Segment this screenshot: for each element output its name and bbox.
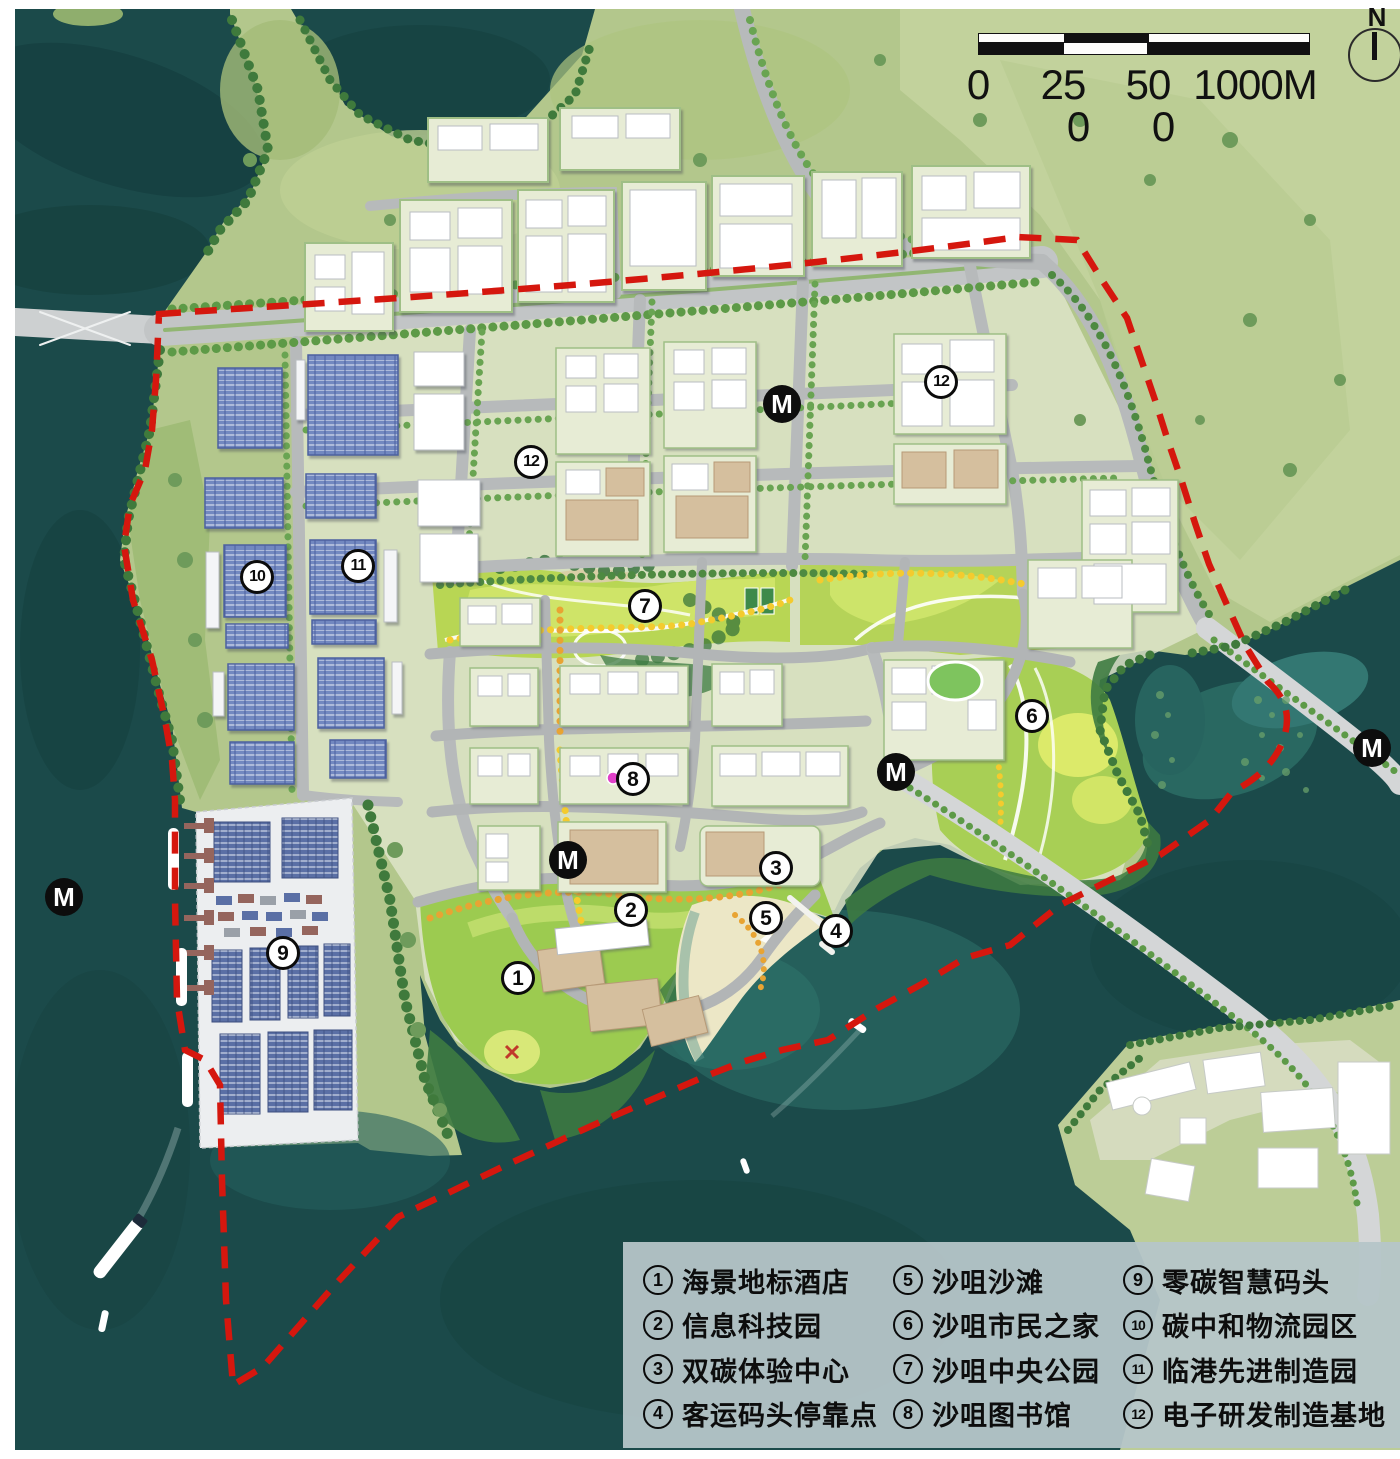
legend-number-icon: 4 — [643, 1399, 673, 1429]
map-marker-2: 2 — [614, 893, 648, 927]
legend-number-icon: 2 — [643, 1310, 673, 1340]
legend-item-3: 3双碳体验中心 — [643, 1347, 893, 1392]
scale-tick-label: 25 — [1041, 61, 1086, 109]
map-marker-7: 7 — [628, 589, 662, 623]
north-arrow: N — [1340, 4, 1400, 96]
legend-label: 临港先进制造园 — [1162, 1350, 1358, 1389]
legend-label: 碳中和物流园区 — [1162, 1305, 1358, 1344]
map-marker-8: 8 — [616, 762, 650, 796]
north-needle-icon — [1372, 32, 1377, 60]
map-marker-11: 11 — [341, 549, 375, 583]
legend-item-4: 4客运码头停靠点 — [643, 1392, 893, 1437]
scale-bar-lower — [978, 42, 1310, 55]
map-marker-5: 5 — [749, 901, 783, 935]
legend-label: 沙咀沙滩 — [932, 1261, 1044, 1300]
legend-label: 零碳智慧码头 — [1162, 1261, 1330, 1300]
legend-panel: 1海景地标酒店2信息科技园3双碳体验中心4客运码头停靠点5沙咀沙滩6沙咀市民之家… — [623, 1242, 1400, 1448]
legend-number-icon: 7 — [893, 1354, 923, 1384]
legend-number-icon: 5 — [893, 1265, 923, 1295]
scale-tick-label: 0 — [967, 61, 989, 109]
map-marker-3: 3 — [759, 851, 793, 885]
legend-label: 电子研发制造基地 — [1162, 1394, 1386, 1433]
wharf — [184, 798, 358, 1148]
legend-label: 客运码头停靠点 — [682, 1394, 878, 1433]
legend-number-icon: 9 — [1123, 1265, 1153, 1295]
legend-label: 沙咀中央公园 — [932, 1350, 1100, 1389]
map-canvas — [15, 9, 1400, 1450]
legend-number-icon: 12 — [1123, 1399, 1153, 1429]
legend-item-5: 5沙咀沙滩 — [893, 1258, 1123, 1303]
legend-label: 沙咀图书馆 — [932, 1394, 1072, 1433]
metro-station-icon: M — [877, 753, 915, 791]
legend-number-icon: 10 — [1123, 1310, 1153, 1340]
legend-label: 沙咀市民之家 — [932, 1305, 1100, 1344]
legend-item-8: 8沙咀图书馆 — [893, 1392, 1123, 1437]
legend-number-icon: 6 — [893, 1310, 923, 1340]
legend-item-11: 11临港先进制造园 — [1123, 1347, 1400, 1392]
legend-item-10: 10碳中和物流园区 — [1123, 1303, 1400, 1348]
legend-number-icon: 11 — [1123, 1354, 1153, 1384]
metro-station-icon: M — [763, 385, 801, 423]
map-marker-1: 1 — [501, 961, 535, 995]
map-marker-9: 9 — [266, 936, 300, 970]
legend-item-7: 7沙咀中央公园 — [893, 1347, 1123, 1392]
metro-station-icon: M — [1353, 729, 1391, 767]
map-marker-4: 4 — [819, 914, 853, 948]
legend-number-icon: 8 — [893, 1399, 923, 1429]
scale-tick-label: 0 — [1152, 103, 1174, 151]
legend-label: 海景地标酒店 — [682, 1261, 850, 1300]
legend-grid: 1海景地标酒店2信息科技园3双碳体验中心4客运码头停靠点5沙咀沙滩6沙咀市民之家… — [643, 1258, 1400, 1436]
legend-item-6: 6沙咀市民之家 — [893, 1303, 1123, 1348]
legend-item-9: 9零碳智慧码头 — [1123, 1258, 1400, 1303]
legend-item-1: 1海景地标酒店 — [643, 1258, 893, 1303]
north-label: N — [1348, 4, 1400, 30]
map-marker-12: 12 — [924, 365, 958, 399]
scale-tick-label: 50 — [1126, 61, 1171, 109]
map-marker-10: 10 — [240, 560, 274, 594]
legend-label: 双碳体验中心 — [682, 1350, 850, 1389]
scale-tick-label: 0 — [1067, 103, 1089, 151]
map-marker-12: 12 — [514, 445, 548, 479]
metro-station-icon: M — [45, 878, 83, 916]
map-marker-6: 6 — [1015, 699, 1049, 733]
legend-number-icon: 3 — [643, 1354, 673, 1384]
legend-item-12: 12电子研发制造基地 — [1123, 1392, 1400, 1437]
metro-station-icon: M — [549, 841, 587, 879]
legend-number-icon: 1 — [643, 1265, 673, 1295]
scale-tick-label: 1000M — [1193, 61, 1316, 109]
masterplan-page: { "map": { "type": "urban-masterplan-ren… — [0, 0, 1400, 1459]
legend-label: 信息科技园 — [682, 1305, 822, 1344]
scale-bar: 025501000M00 — [978, 33, 1310, 153]
legend-item-2: 2信息科技园 — [643, 1303, 893, 1348]
masterplan-svg — [15, 9, 1400, 1450]
